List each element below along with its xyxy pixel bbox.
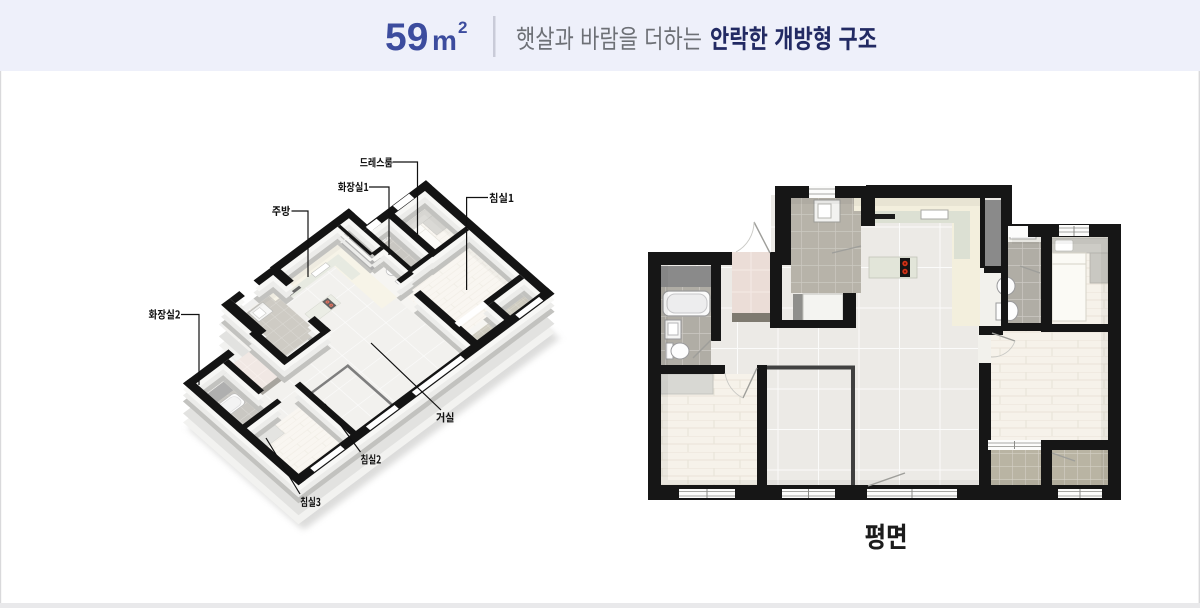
svg-text:59: 59 — [385, 16, 428, 59]
svg-text:2: 2 — [458, 18, 467, 37]
svg-text:m: m — [432, 25, 457, 56]
